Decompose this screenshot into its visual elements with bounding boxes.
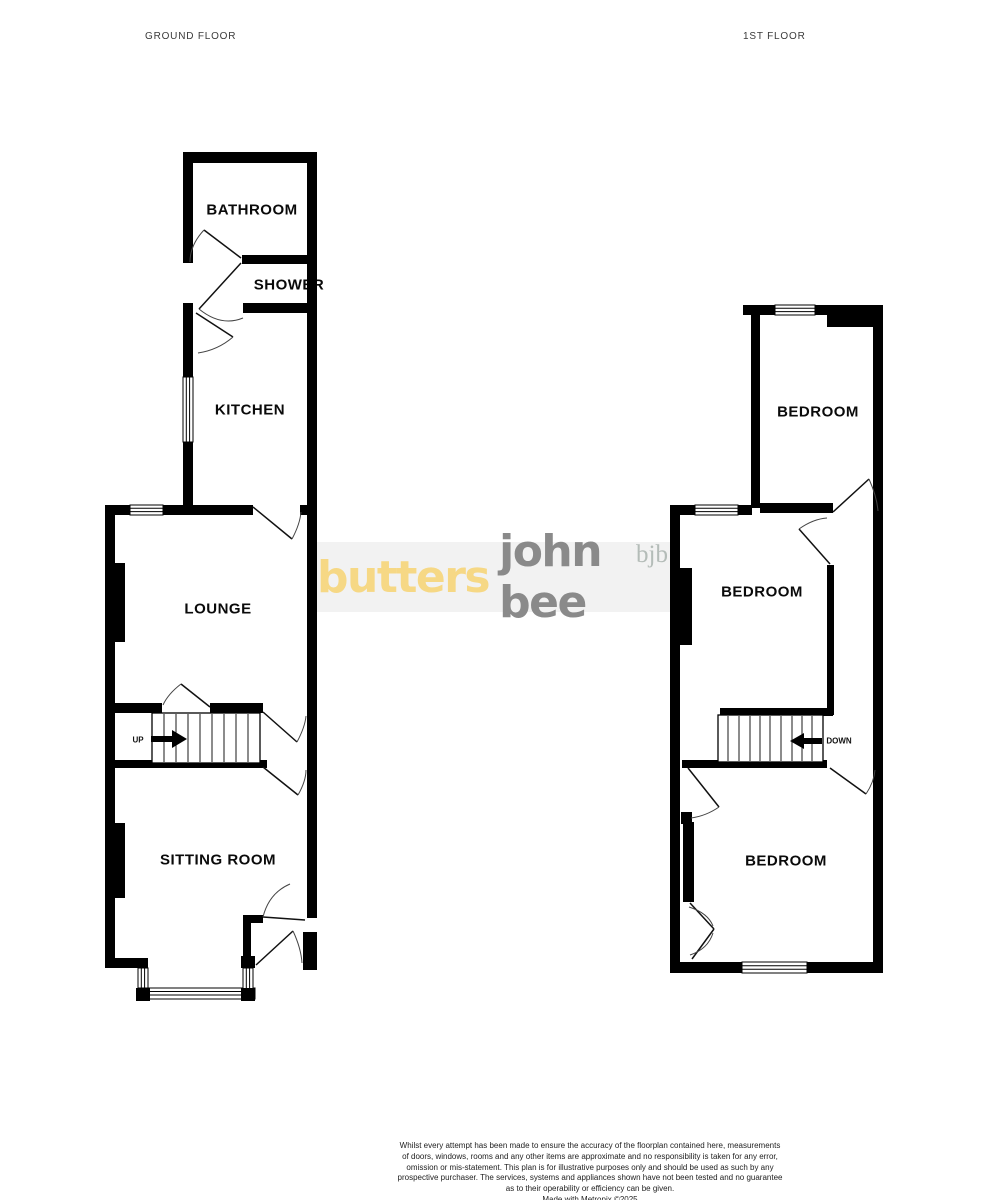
- room-label-lounge: LOUNGE: [184, 601, 251, 618]
- ground-floor-title: GROUND FLOOR: [145, 31, 236, 42]
- bay-window-corner-blocks: [136, 956, 255, 1001]
- room-label-bedroom-front: BEDROOM: [745, 853, 827, 870]
- first-staircase: [718, 715, 823, 762]
- down-arrow-icon: [790, 733, 822, 749]
- first-floor-doors: [688, 479, 869, 959]
- room-label-bathroom: BATHROOM: [206, 202, 297, 219]
- logo-bjb-monogram: bjb: [636, 541, 668, 569]
- disclaimer-text: Whilst every attempt has been made to en…: [370, 1141, 810, 1195]
- metropix-credit: Made with Metropix ©2025: [370, 1195, 810, 1200]
- room-label-kitchen: KITCHEN: [215, 402, 285, 419]
- room-label-shower: SHOWER: [254, 277, 325, 294]
- ground-floor-windows: [130, 377, 255, 999]
- room-label-sitting-room: SITTING ROOM: [160, 852, 276, 869]
- first-floor-door-arcs: [689, 479, 878, 955]
- room-label-bedroom-middle: BEDROOM: [721, 584, 803, 601]
- first-floor-title: 1ST FLOOR: [743, 31, 806, 42]
- logo-watermark: butters john bee: [313, 542, 673, 612]
- ground-staircase: [152, 713, 260, 763]
- room-label-bedroom-rear: BEDROOM: [777, 404, 859, 421]
- stairs-down-label: DOWN: [826, 737, 851, 746]
- footer: Whilst every attempt has been made to en…: [370, 1141, 810, 1200]
- stairs-up-label: UP: [132, 736, 143, 745]
- up-arrow-icon: [151, 730, 187, 748]
- ground-floor-walls: [105, 152, 317, 970]
- floorplan-page: GROUND FLOOR 1ST FLOOR BATHROOM SHOWER K…: [0, 0, 991, 1200]
- logo-butters-text: butters: [317, 552, 489, 603]
